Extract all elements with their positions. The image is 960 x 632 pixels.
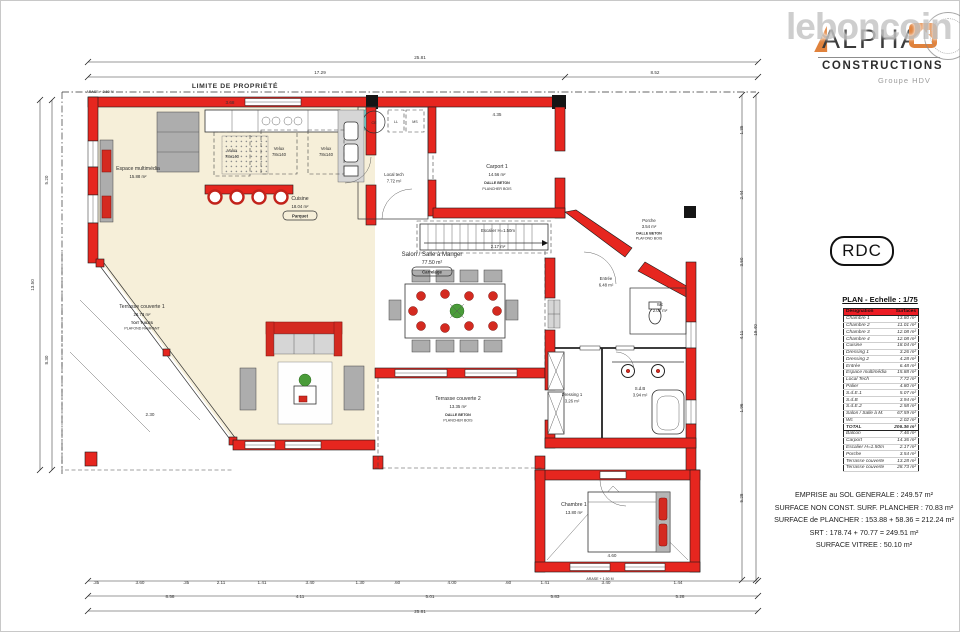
washer-label: LL xyxy=(394,120,398,124)
svg-text:4.11: 4.11 xyxy=(296,594,305,599)
svg-text:3.54 m²: 3.54 m² xyxy=(642,224,657,229)
floor-plan-drawing: CE LL MS Velux 78x140 xyxy=(0,0,800,632)
dressing-wardrobes xyxy=(548,300,564,434)
svg-text:.35: .35 xyxy=(93,580,100,585)
svg-text:5.20: 5.20 xyxy=(44,175,49,184)
table-row: Carport14.36 m² xyxy=(844,437,919,444)
arase-top-label: ARASE + 2.50 M xyxy=(86,90,113,94)
dryer-label: MS xyxy=(412,120,418,124)
logo-constructions-text: CONSTRUCTIONS xyxy=(822,60,943,72)
dining-set xyxy=(389,270,518,352)
svg-text:2.17 m²: 2.17 m² xyxy=(491,244,506,249)
room-local-tech: Local tech xyxy=(384,172,404,177)
svg-text:.35: .35 xyxy=(183,580,190,585)
svg-text:18.04 m²: 18.04 m² xyxy=(292,204,310,209)
table-row: S.d.E.15.07 m² xyxy=(844,390,919,397)
room-entree: Entrée xyxy=(600,276,613,281)
svg-text:Velux: Velux xyxy=(274,146,285,151)
table-row: Wc2.02 m² xyxy=(844,417,919,424)
svg-text:5.28: 5.28 xyxy=(676,594,685,599)
svg-text:1.41: 1.41 xyxy=(258,580,267,585)
svg-text:13.35 m²: 13.35 m² xyxy=(450,404,468,409)
svg-text:3.40: 3.40 xyxy=(306,580,315,585)
table-row: Chambre 312.08 m² xyxy=(844,329,919,336)
room-porche: Porche xyxy=(642,218,656,223)
svg-text:13.50: 13.50 xyxy=(30,279,35,291)
svg-text:1.30: 1.30 xyxy=(356,580,365,585)
summary-line: SURFACE VITREE : 50.10 m² xyxy=(768,539,960,552)
svg-text:Velux: Velux xyxy=(321,146,332,151)
room-sdb: S.d.B xyxy=(635,386,646,391)
room-salon: Salon / Salle à Manger xyxy=(402,252,463,258)
water-heater-label: CE xyxy=(372,121,378,125)
svg-text:DALLE BETON: DALLE BETON xyxy=(636,232,662,236)
table-row: Balcon7.46 m² xyxy=(844,431,919,438)
terrace-2 xyxy=(375,378,545,468)
logo-divider xyxy=(818,57,940,58)
svg-text:8.30: 8.30 xyxy=(44,355,49,364)
svg-text:.60: .60 xyxy=(394,580,401,585)
svg-text:5.83: 5.83 xyxy=(551,594,560,599)
room-dressing: Dressing 1 xyxy=(562,392,583,397)
svg-text:3.40: 3.40 xyxy=(602,580,611,585)
svg-text:13.80 m²: 13.80 m² xyxy=(566,510,584,515)
room-espace-multimedia: Espace multimédia xyxy=(116,166,160,172)
svg-text:77.50 m²: 77.50 m² xyxy=(422,260,443,266)
svg-text:78x140: 78x140 xyxy=(319,152,334,157)
svg-text:1.35: 1.35 xyxy=(739,125,744,134)
svg-text:PLANCHER BOIS: PLANCHER BOIS xyxy=(443,419,473,423)
table-row: Porche3.54 m² xyxy=(844,451,919,458)
svg-text:14.56 m²: 14.56 m² xyxy=(489,172,507,177)
svg-text:17.29: 17.29 xyxy=(314,70,326,75)
svg-text:PLANCHER BOIS: PLANCHER BOIS xyxy=(482,187,512,191)
svg-text:15.88 m²: 15.88 m² xyxy=(130,174,148,179)
svg-text:3.68: 3.68 xyxy=(226,100,235,105)
svg-text:4.11: 4.11 xyxy=(739,330,744,339)
table-row: Chambre 113.80 m² xyxy=(844,315,919,322)
svg-text:3.60: 3.60 xyxy=(136,580,145,585)
svg-text:4.35: 4.35 xyxy=(493,112,502,117)
svg-text:2.44: 2.44 xyxy=(739,190,744,199)
table-row: Dressing 24.28 m² xyxy=(844,356,919,363)
table-row: Salon / Salle à M.67.59 m² xyxy=(844,410,919,417)
table-row: S.d.E.22.58 m² xyxy=(844,403,919,410)
leboncoin-watermark: leboncoin xyxy=(786,6,952,48)
svg-text:1.96: 1.96 xyxy=(739,403,744,412)
table-row: Chambre 412.08 m² xyxy=(844,336,919,343)
table-row: Local Tech7.72 m² xyxy=(844,376,919,383)
svg-text:5.28: 5.28 xyxy=(739,493,744,502)
table-row: Dressing 13.26 m² xyxy=(844,349,919,356)
svg-text:78x140: 78x140 xyxy=(272,152,287,157)
table-row: Espace multimédia15.88 m² xyxy=(844,370,919,377)
svg-text:5.01: 5.01 xyxy=(426,594,435,599)
surface-table: Désignation Surfaces Chambre 113.80 m² C… xyxy=(843,308,919,472)
svg-text:7.72 m²: 7.72 m² xyxy=(387,179,402,184)
summary-line: EMPRISE au SOL GENERALE : 249.57 m² xyxy=(768,489,960,502)
svg-text:3.26 m²: 3.26 m² xyxy=(565,399,580,404)
svg-text:19.40: 19.40 xyxy=(753,324,758,336)
svg-text:8.52: 8.52 xyxy=(651,70,660,75)
table-total-row: TOTAL206.36 m² xyxy=(844,424,919,431)
room-wc: Wc xyxy=(657,302,664,307)
room-chambre-1: Chambre 1 xyxy=(561,502,587,508)
room-cuisine: Cuisine xyxy=(291,196,308,202)
svg-text:1.41: 1.41 xyxy=(541,580,550,585)
table-row: Terrasse couverte13.28 m² xyxy=(844,458,919,465)
svg-text:8.58: 8.58 xyxy=(166,594,175,599)
svg-text:Carrelage: Carrelage xyxy=(422,270,442,275)
svg-text:Velux: Velux xyxy=(227,148,238,153)
table-row: Terrasse couverte28.73 m² xyxy=(844,464,919,471)
staircase xyxy=(417,221,551,253)
table-row: Cuisine18.04 m² xyxy=(844,342,919,349)
logo-group-text: Groupe HDV xyxy=(878,76,931,85)
room-carport: Carport 1 xyxy=(486,164,508,170)
svg-text:DALLE BETON: DALLE BETON xyxy=(484,181,510,185)
svg-text:3.94 m²: 3.94 m² xyxy=(633,393,648,398)
surface-table-header: Désignation Surfaces xyxy=(844,309,919,316)
bathroom-fixtures xyxy=(612,302,684,434)
room-terrasse-2: Terrasse couverte 2 xyxy=(435,396,481,402)
table-row: Escalier H=1.50m2.17 m² xyxy=(844,444,919,451)
svg-text:Parquet: Parquet xyxy=(292,214,309,219)
svg-text:3.50: 3.50 xyxy=(739,257,744,266)
floor-plan-page: { "watermark": "leboncoin", "logo": { "a… xyxy=(0,0,960,632)
property-line-label: LIMITE DE PROPRIÉTÉ xyxy=(192,81,278,90)
room-terrasse-1: Terrasse couverte 1 xyxy=(119,304,165,310)
room-escalier: Escalier H=1.50m xyxy=(481,228,515,233)
floor-level-badge: RDC xyxy=(830,236,894,266)
svg-text:2.02 m²: 2.02 m² xyxy=(653,308,668,313)
svg-text:2.11: 2.11 xyxy=(217,580,226,585)
svg-text:25.81: 25.81 xyxy=(414,609,426,614)
svg-text:TOIT TUILES: TOIT TUILES xyxy=(131,321,153,325)
svg-text:28.73 m²: 28.73 m² xyxy=(134,312,152,317)
summary-line: SURFACE de PLANCHER : 153.88 + 58.36 = 2… xyxy=(768,514,960,527)
svg-text:PLAFOND BOIS: PLAFOND BOIS xyxy=(636,237,663,241)
table-row: Chambre 211.01 m² xyxy=(844,322,919,329)
surface-summary: EMPRISE au SOL GENERALE : 249.57 m² SURF… xyxy=(768,489,960,552)
svg-text:4.00: 4.00 xyxy=(448,580,457,585)
plan-scale-title: PLAN - Echelle : 1/75 xyxy=(832,295,928,304)
svg-text:1.44: 1.44 xyxy=(674,580,683,585)
svg-text:PLAFOND RAMPANT: PLAFOND RAMPANT xyxy=(124,327,160,331)
summary-line: SRT : 178.74 + 70.77 = 249.51 m² xyxy=(768,527,960,540)
svg-text:4.60: 4.60 xyxy=(608,553,617,558)
table-row: Palier4.80 m² xyxy=(844,383,919,390)
svg-text:25.81: 25.81 xyxy=(414,55,426,60)
svg-text:78x140: 78x140 xyxy=(225,154,240,159)
table-row: S.d.B3.94 m² xyxy=(844,397,919,404)
bedroom-furniture xyxy=(547,486,688,560)
svg-text:.60: .60 xyxy=(505,580,512,585)
svg-text:2.30: 2.30 xyxy=(146,412,155,417)
summary-line: SURFACE NON CONST. SURF. PLANCHER : 70.8… xyxy=(768,502,960,515)
svg-text:DALLE BETON: DALLE BETON xyxy=(445,413,471,417)
table-row: Entrée6.48 m² xyxy=(844,363,919,370)
svg-text:6.48 m²: 6.48 m² xyxy=(599,283,614,288)
